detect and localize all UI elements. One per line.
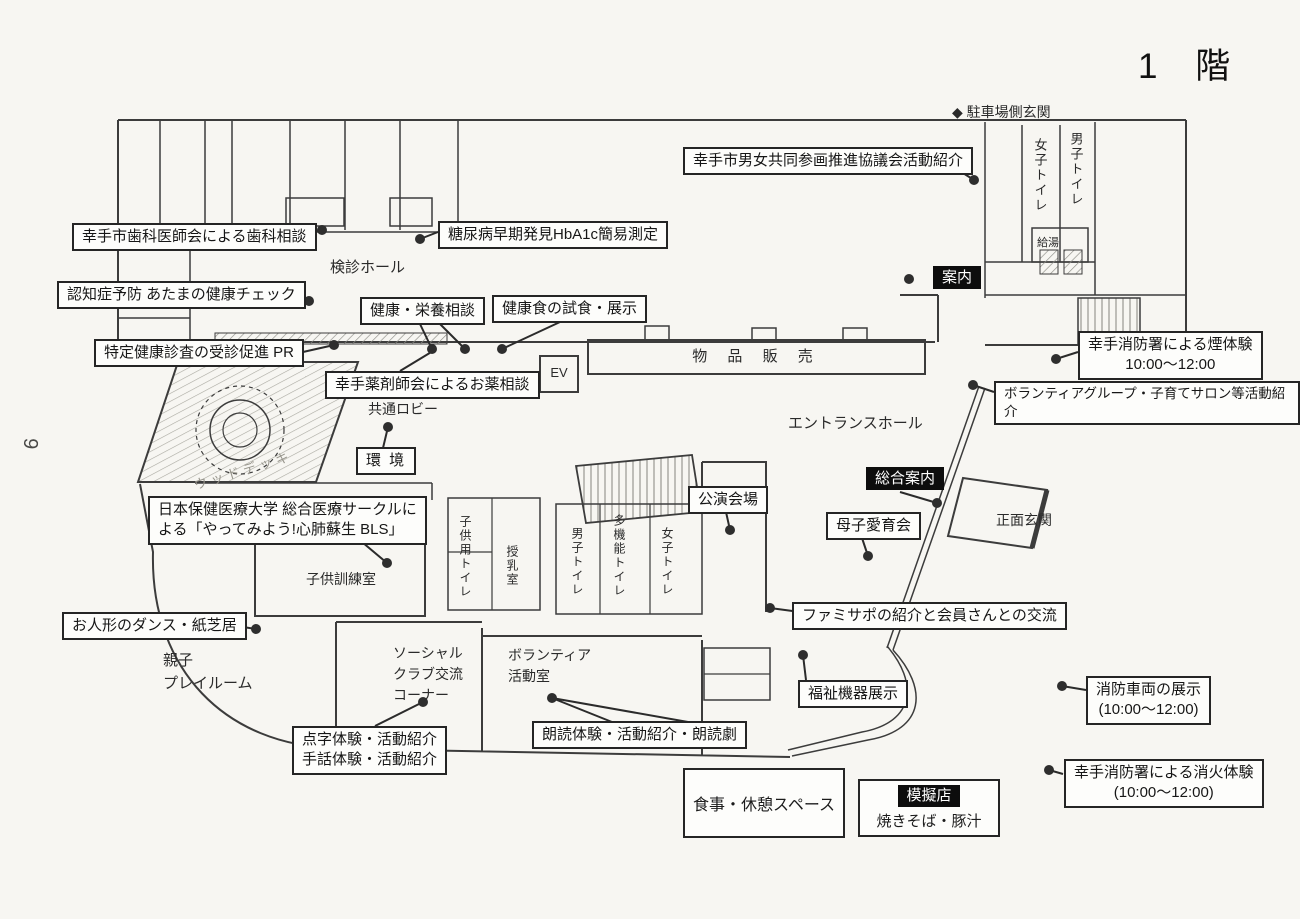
callout-kemuri-taiken: 幸手消防署による煙体験 10:00〜12:00 — [1078, 331, 1263, 380]
callout-kankyo: 環 境 — [356, 447, 416, 475]
room-label-kenshin-hall: 検診ホール — [330, 257, 405, 280]
room-label-kodomo-kunren: 子供訓練室 — [306, 569, 376, 590]
room-label-toilet-men-top: 男子トイレ — [1066, 132, 1086, 207]
callout-tenji-shuwa: 点字体験・活動紹介 手話体験・活動紹介 — [292, 726, 447, 775]
callout-yakuzaishikai: 幸手薬剤師会によるお薬相談 — [325, 371, 540, 399]
callout-volunteer-group: ボランティアグループ・子育てサロン等活動紹介 — [994, 381, 1300, 425]
room-label-junyu: 授乳室 — [503, 545, 521, 587]
room-label-kyotsu-lobby: 共通ロビー — [368, 399, 438, 420]
parking-entrance-label: ◆ 駐車場側玄関 — [952, 102, 1051, 123]
badge-sogo-annai: 総合案内 — [866, 467, 944, 490]
room-label-entrance-hall: エントランスホール — [788, 413, 923, 436]
elevator-label: EV — [540, 363, 578, 383]
callout-shoka-taiken: 幸手消防署による消火体験 (10:00〜12:00) — [1064, 759, 1264, 808]
callout-danjo-kyodo: 幸手市男女共同参画推進協議会活動紹介 — [683, 147, 973, 175]
floor-map-page: 1 階 9 ◆ 駐車場側玄関 検診ホール 共通ロビー エントランスホール 正面玄… — [0, 0, 1300, 919]
room-label-toilet-kids: 子供用トイレ — [456, 515, 474, 599]
front-entrance-label: 正面玄関 — [996, 510, 1052, 531]
callout-bls: 日本保健医療大学 総合医療サークルに よる「やってみよう!心肺蘇生 BLS」 — [148, 496, 427, 545]
callout-shika-sodan: 幸手市歯科医師会による歯科相談 — [72, 223, 317, 251]
room-label-volunteer-room: ボランティア 活動室 — [508, 645, 591, 687]
room-label-social-club: ソーシャル クラブ交流 コーナー — [393, 643, 463, 706]
badge-mogiten: 模擬店 — [898, 785, 959, 807]
page-title: 1 階 — [1138, 38, 1244, 89]
room-label-toilet-women-mid: 女子トイレ — [658, 527, 676, 597]
callout-tokutei-kenshin: 特定健康診査の受診促進 PR — [94, 339, 304, 367]
mogiten-box: 模擬店 焼きそば・豚汁 — [858, 779, 1000, 837]
room-label-oyako-playroom: 親子 プレイルーム — [163, 650, 253, 695]
callout-tonyobyo: 糖尿病早期発見HbA1c簡易測定 — [438, 221, 668, 249]
room-label-toilet-men-mid: 男子トイレ — [568, 527, 586, 597]
room-label-toilet-women-top: 女子トイレ — [1030, 138, 1050, 213]
callout-fukushi-kiki: 福祉機器展示 — [798, 680, 908, 708]
room-label-kyuto: 給湯 — [1037, 235, 1059, 252]
callout-oningyo: お人形のダンス・紙芝居 — [62, 612, 247, 640]
callout-rodoku: 朗読体験・活動紹介・朗読劇 — [532, 721, 747, 749]
callout-kenkoshoku: 健康食の試食・展示 — [492, 295, 647, 323]
badge-annai: 案内 — [933, 266, 981, 289]
shokuji-space-label: 食事・休憩スペース — [693, 791, 835, 815]
room-label-toilet-multi: 多機能トイレ — [610, 514, 628, 598]
callout-ninchisho: 認知症予防 あたまの健康チェック — [57, 281, 306, 309]
callout-famisapo: ファミサポの紹介と会員さんとの交流 — [792, 602, 1067, 630]
callout-koen-kaijo: 公演会場 — [688, 486, 768, 514]
page-number: 9 — [18, 437, 42, 450]
callout-kenko-eiyo: 健康・栄養相談 — [360, 297, 485, 325]
room-label-buppin-hanbai: 物 品 販 売 — [588, 346, 925, 369]
callout-boshi-aiiku: 母子愛育会 — [826, 512, 921, 540]
callout-shobo-sharyo: 消防車両の展示 (10:00〜12:00) — [1086, 676, 1211, 725]
shokuji-space-box: 食事・休憩スペース — [683, 768, 845, 838]
mogiten-menu-label: 焼きそば・豚汁 — [876, 810, 981, 831]
